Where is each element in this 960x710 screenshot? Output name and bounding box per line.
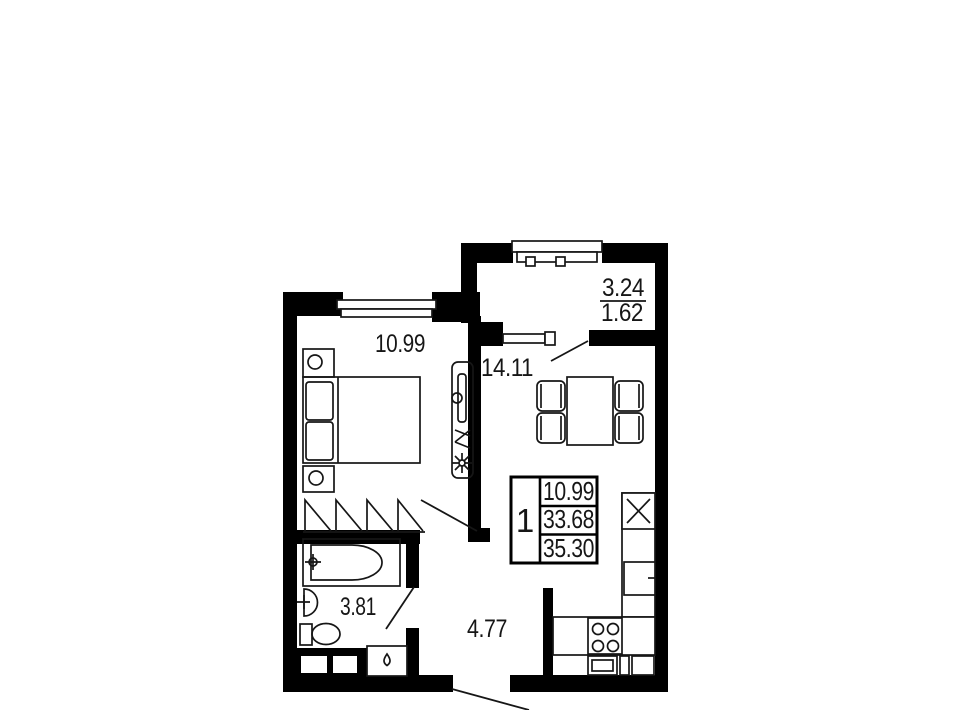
stamp-rooms-count: 1 <box>516 502 534 539</box>
bedroom-furniture <box>303 349 473 532</box>
balcony-area-total-label: 3.24 <box>602 274 645 302</box>
bottom-wall-right <box>510 675 668 692</box>
dining-set <box>537 377 643 445</box>
stamp-area-main: 33.68 <box>543 504 594 534</box>
table-lamp-icon <box>309 471 323 485</box>
hanger-triangle <box>398 500 423 531</box>
washing-machine-symbol <box>367 646 407 676</box>
balcony-window-mullion <box>556 257 565 266</box>
bathroom-right-wall-lower <box>406 628 419 677</box>
shelf-decor-lines <box>455 430 470 448</box>
balcony-window-mullion <box>526 257 535 266</box>
balcony-sill-post <box>545 332 555 345</box>
entry-cabinet-niche <box>333 656 357 673</box>
bathroom-area-label: 3.81 <box>340 593 376 621</box>
entry-cabinet-niche <box>301 656 327 673</box>
bathroom-right-wall-upper <box>406 544 419 588</box>
balcony-door-swing <box>551 341 588 361</box>
dining-table <box>567 377 613 445</box>
toilet-tank <box>300 624 312 645</box>
floor-plan: 10.99 14.11 3.81 4.77 3.24 1.62 1 10.99 … <box>0 0 960 710</box>
toilet-bowl <box>312 624 340 645</box>
washbasin-symbol <box>297 589 318 616</box>
bathroom-door-swing <box>386 587 414 629</box>
balcony-top-wall-left <box>461 243 513 263</box>
bedroom-window <box>337 300 436 309</box>
kitchen-cabinet <box>632 656 654 675</box>
chair <box>615 381 643 411</box>
apartment-stamp: 1 10.99 33.68 35.30 <box>511 476 597 563</box>
bedroom-partition-wall <box>468 316 481 542</box>
bedroom-area-label: 10.99 <box>375 330 425 358</box>
chair <box>537 413 565 443</box>
pillow-symbol <box>306 422 333 460</box>
balcony-area-coef-label: 1.62 <box>601 299 643 327</box>
nightstand-symbol <box>303 466 334 492</box>
bottom-wall-left <box>283 675 453 692</box>
hanger-triangle <box>367 500 393 531</box>
bedroom-top-wall-left <box>283 292 343 316</box>
chair <box>615 413 643 443</box>
stove-symbol <box>588 618 622 654</box>
toilet-symbol <box>300 624 340 646</box>
kitchen-partition-wall <box>543 588 553 677</box>
stamp-living-area: 10.99 <box>543 476 594 506</box>
plant-icon <box>452 453 472 473</box>
bathtub-inner <box>311 545 382 580</box>
wardrobe-symbol <box>303 500 425 532</box>
outer-wall-left <box>283 292 297 692</box>
bedroom-door-corner-wall <box>468 528 490 542</box>
table-lamp-icon <box>308 355 322 369</box>
floor-plan-svg: 10.99 14.11 3.81 4.77 3.24 1.62 1 10.99 … <box>0 0 960 710</box>
bedroom-window <box>341 309 432 317</box>
stamp-area-total: 35.30 <box>543 533 594 563</box>
balcony-sill-window <box>503 334 545 343</box>
hall-area-label: 4.77 <box>467 615 507 643</box>
kitchen-cabinet <box>620 656 629 675</box>
outer-wall-right <box>655 243 668 692</box>
balcony-window <box>512 241 602 252</box>
living-kitchen-area-label: 14.11 <box>481 354 533 382</box>
hanger-triangle <box>336 500 362 531</box>
basin-tap-icon <box>297 595 310 609</box>
balcony-divider-wall <box>589 330 655 346</box>
pillow-symbol <box>306 382 333 420</box>
kitchen-cabinet-inset <box>592 660 613 671</box>
chair <box>537 381 565 411</box>
hanger-triangle <box>305 500 331 531</box>
faucet-icon <box>305 554 321 570</box>
balcony-area-fraction: 3.24 1.62 <box>600 274 646 327</box>
entrance-door-swing <box>452 689 529 710</box>
tv-stand-icon <box>452 393 462 403</box>
